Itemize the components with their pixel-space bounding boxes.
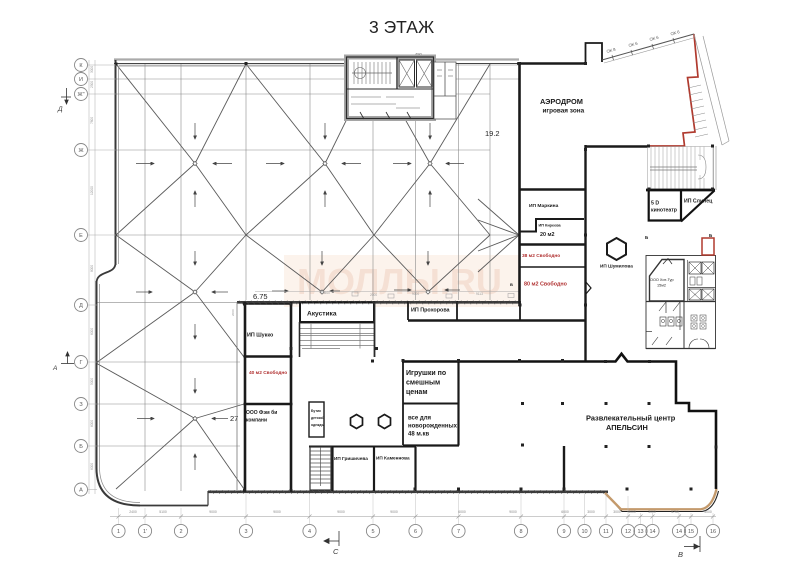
svg-text:3: 3 xyxy=(244,529,247,535)
svg-text:Бутик: Бутик xyxy=(311,409,321,413)
svg-text:З: З xyxy=(79,402,83,408)
svg-text:9000: 9000 xyxy=(390,510,398,514)
svg-text:ОК 6: ОК 6 xyxy=(649,34,660,42)
svg-text:игровая зона: игровая зона xyxy=(543,108,585,115)
svg-text:компани: компани xyxy=(246,418,267,424)
svg-text:2: 2 xyxy=(179,529,182,535)
svg-text:40 м2 Свободно: 40 м2 Свободно xyxy=(249,369,287,376)
svg-text:9000: 9000 xyxy=(209,510,217,514)
svg-text:ИП Киреева: ИП Киреева xyxy=(539,224,562,228)
svg-text:И: И xyxy=(79,77,83,83)
svg-text:14: 14 xyxy=(676,529,682,535)
svg-text:5750: 5750 xyxy=(671,510,679,514)
svg-text:ИП Гришичева: ИП Гришичева xyxy=(334,456,368,461)
svg-text:4: 4 xyxy=(308,529,311,535)
svg-text:Развлекательный центр: Развлекательный центр xyxy=(586,414,676,423)
svg-text:6000: 6000 xyxy=(561,510,569,514)
svg-text:3000: 3000 xyxy=(90,66,94,73)
svg-text:6.75: 6.75 xyxy=(253,292,268,301)
svg-text:6000: 6000 xyxy=(90,328,94,335)
svg-text:АПЕЛЬСИН: АПЕЛЬСИН xyxy=(606,423,648,432)
svg-text:19.2: 19.2 xyxy=(485,129,500,138)
svg-text:10: 10 xyxy=(581,529,587,535)
svg-text:1': 1' xyxy=(143,529,147,535)
svg-text:А: А xyxy=(52,365,57,372)
svg-text:2000: 2000 xyxy=(370,293,377,297)
svg-text:смешным: смешным xyxy=(406,380,440,387)
svg-text:С: С xyxy=(333,547,339,556)
svg-text:80 м2 Свободно: 80 м2 Свободно xyxy=(524,281,568,288)
svg-text:Е: Е xyxy=(79,233,83,239)
svg-text:ИП Прохорова: ИП Прохорова xyxy=(411,308,451,314)
svg-text:5000: 5000 xyxy=(90,378,94,385)
svg-text:48 м.кв: 48 м.кв xyxy=(408,432,429,438)
svg-text:8: 8 xyxy=(519,529,522,535)
svg-text:9: 9 xyxy=(562,529,565,535)
svg-text:А: А xyxy=(79,488,83,494)
svg-text:кинотеатр: кинотеатр xyxy=(651,208,677,214)
svg-text:все для: все для xyxy=(408,416,432,422)
svg-text:15: 15 xyxy=(688,529,694,535)
svg-text:МОЛЛЫ.RU: МОЛЛЫ.RU xyxy=(297,261,502,302)
svg-text:3000: 3000 xyxy=(613,510,621,514)
svg-text:2300: 2300 xyxy=(90,81,94,88)
svg-text:Д: Д xyxy=(57,106,63,113)
svg-text:38 м2 Свободно: 38 м2 Свободно xyxy=(522,252,560,259)
svg-text:Игрушки по: Игрушки по xyxy=(406,370,446,377)
svg-text:7800: 7800 xyxy=(90,117,94,124)
svg-text:9000: 9000 xyxy=(273,510,281,514)
svg-text:ОК 6: ОК 6 xyxy=(628,40,639,48)
svg-text:6000: 6000 xyxy=(90,420,94,427)
svg-text:ИП Шукко: ИП Шукко xyxy=(247,333,274,339)
svg-text:новорожденных: новорожденных xyxy=(408,424,458,430)
svg-text:7: 7 xyxy=(457,529,460,535)
svg-text:9000: 9000 xyxy=(412,292,419,296)
svg-text:2400: 2400 xyxy=(129,510,137,514)
svg-text:одежды: одежды xyxy=(311,423,325,427)
svg-text:1: 1 xyxy=(117,529,120,535)
svg-text:5: 5 xyxy=(371,529,374,535)
svg-text:9113: 9113 xyxy=(476,292,483,296)
svg-text:11: 11 xyxy=(603,529,609,535)
svg-text:5 D: 5 D xyxy=(651,201,659,207)
svg-text:3000: 3000 xyxy=(704,510,712,514)
svg-text:Ж: Ж xyxy=(78,148,83,154)
svg-text:14: 14 xyxy=(649,529,655,535)
svg-text:детской: детской xyxy=(311,416,324,420)
svg-text:ОК 8: ОК 8 xyxy=(606,46,617,54)
svg-text:20 м2: 20 м2 xyxy=(540,232,554,238)
svg-text:ИП Каменнова: ИП Каменнова xyxy=(376,456,410,461)
svg-text:ОК 6: ОК 6 xyxy=(670,29,681,37)
svg-text:ИП Шумилова: ИП Шумилова xyxy=(600,264,633,269)
svg-text:6: 6 xyxy=(414,529,417,535)
svg-text:Д: Д xyxy=(79,303,83,309)
svg-text:12000: 12000 xyxy=(90,186,94,195)
svg-text:АЭРОДРОМ: АЭРОДРОМ xyxy=(540,97,583,106)
svg-text:В: В xyxy=(510,282,513,287)
svg-text:Б: Б xyxy=(645,235,649,240)
svg-text:В: В xyxy=(678,550,683,559)
svg-text:3 ЭТАЖ: 3 ЭТАЖ xyxy=(369,17,434,37)
svg-text:13: 13 xyxy=(637,529,643,535)
svg-text:3000: 3000 xyxy=(628,510,636,514)
svg-text:ООО Хит-Тур: ООО Хит-Тур xyxy=(650,278,674,282)
svg-text:8000: 8000 xyxy=(90,265,94,272)
svg-text:3000: 3000 xyxy=(648,510,656,514)
svg-text:15м2: 15м2 xyxy=(657,284,666,288)
svg-text:К: К xyxy=(79,63,83,69)
svg-text:5100: 5100 xyxy=(159,510,167,514)
svg-text:ИП Маркина: ИП Маркина xyxy=(529,203,559,209)
svg-text:3000: 3000 xyxy=(587,510,595,514)
svg-text:14500: 14500 xyxy=(321,291,330,295)
svg-text:ИП Слипец: ИП Слипец xyxy=(684,199,713,205)
svg-text:Б: Б xyxy=(79,444,83,450)
svg-text:9000: 9000 xyxy=(509,510,517,514)
svg-text:2000: 2000 xyxy=(231,309,235,316)
svg-text:ценам: ценам xyxy=(406,389,428,396)
svg-text:Акустика: Акустика xyxy=(307,311,337,318)
svg-text:Г: Г xyxy=(80,360,83,366)
svg-text:12: 12 xyxy=(625,529,631,535)
svg-text:9000: 9000 xyxy=(337,510,345,514)
svg-text:ООО Фэм би: ООО Фэм би xyxy=(246,409,277,416)
svg-text:6000: 6000 xyxy=(458,510,466,514)
svg-text:16: 16 xyxy=(710,529,716,535)
svg-text:6000: 6000 xyxy=(90,463,94,470)
svg-text:Ж": Ж" xyxy=(77,92,84,98)
